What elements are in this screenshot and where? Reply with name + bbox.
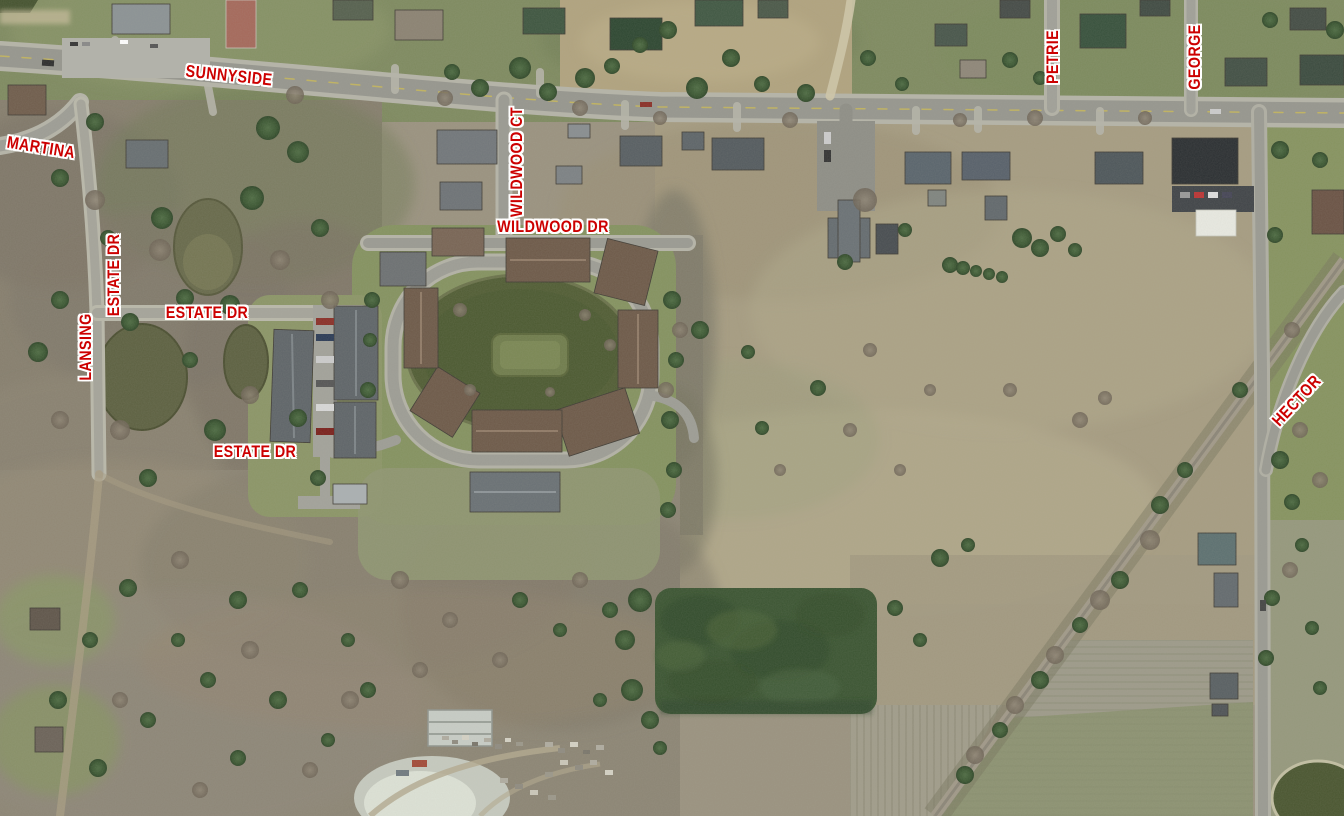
photo-grain-overlay [0, 0, 1344, 816]
map-viewport[interactable]: SUNNYSIDEMARTINAWILDWOOD CTWILDWOOD DRPE… [0, 0, 1344, 816]
aerial-imagery [0, 0, 1344, 816]
